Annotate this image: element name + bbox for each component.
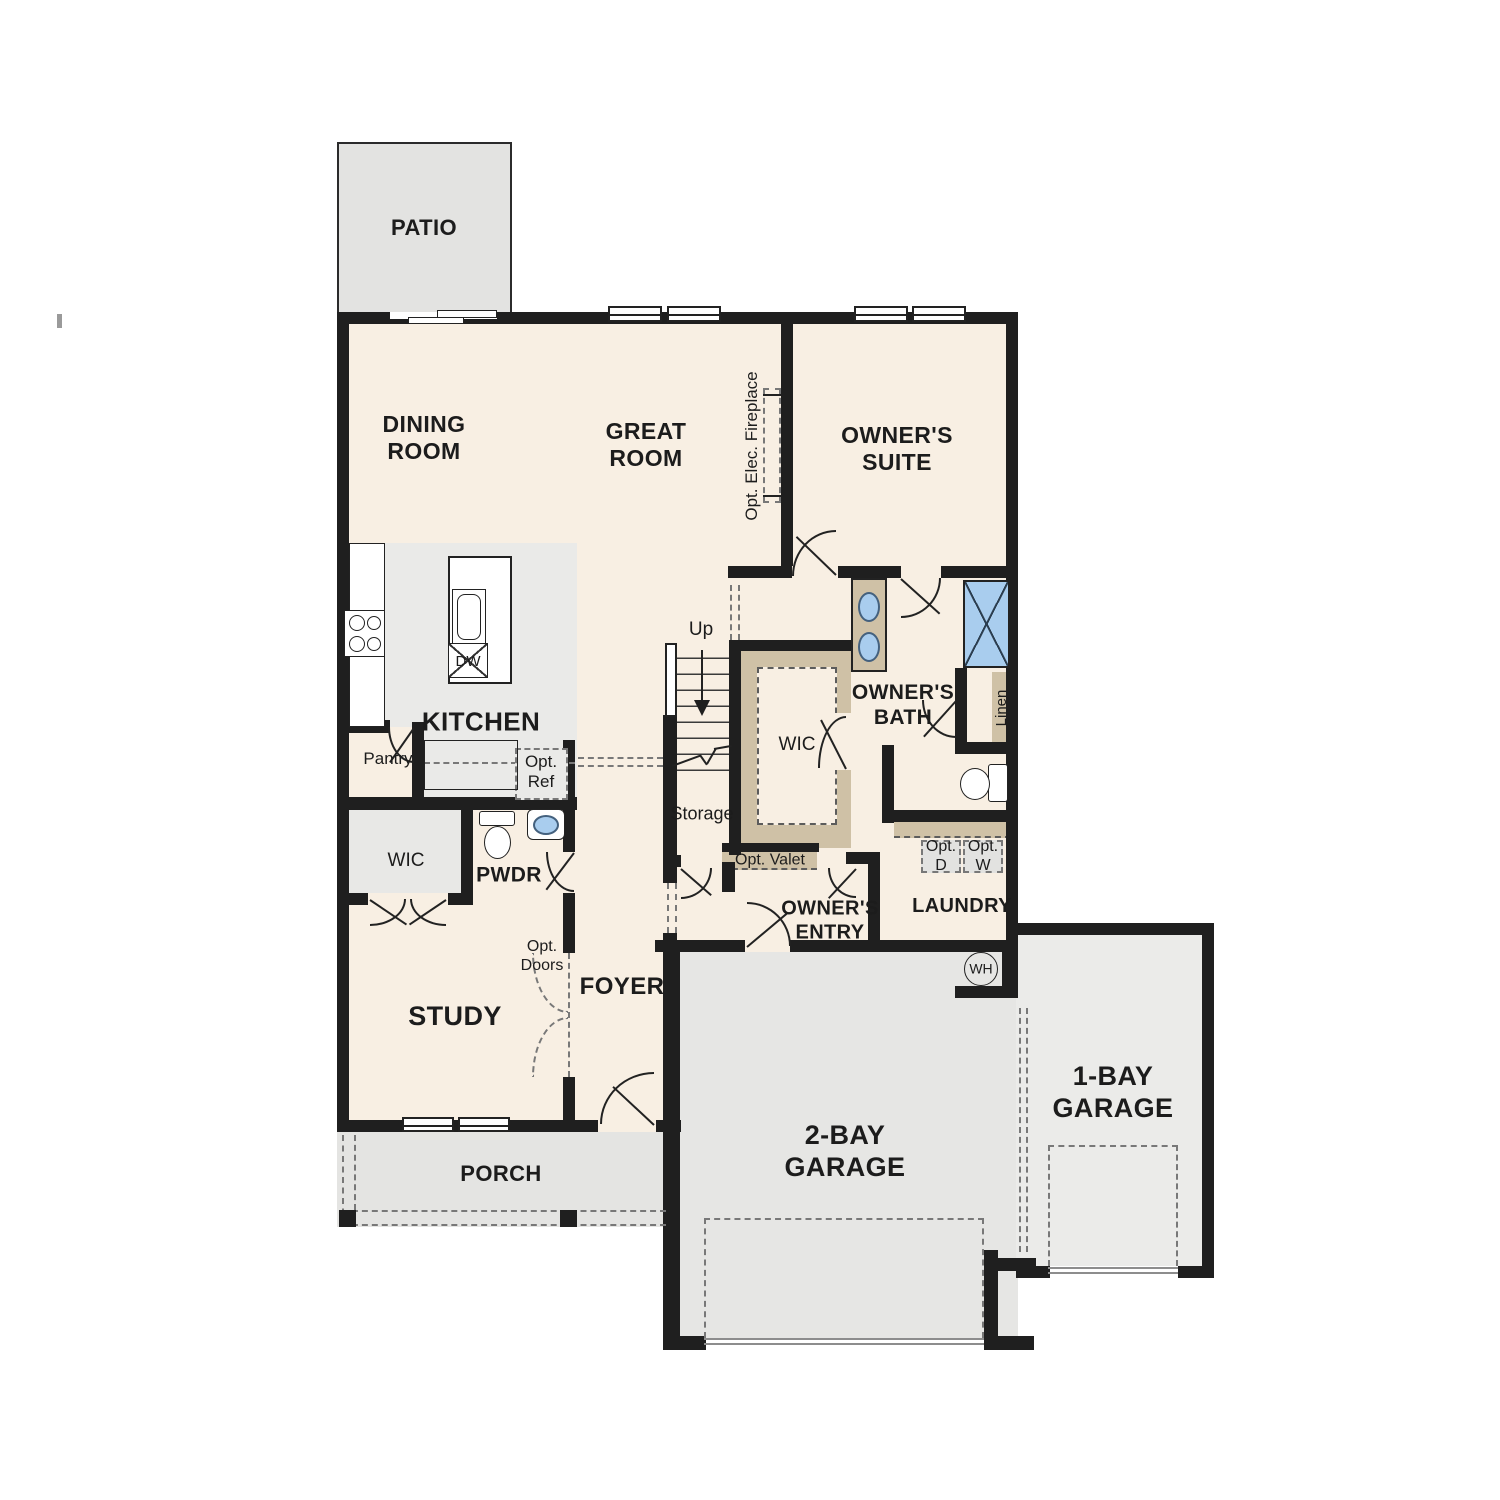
- bath-toilet-tank: [988, 764, 1008, 802]
- label-dishwasher: DW: [456, 653, 481, 671]
- room-label-entry: OWNER'S ENTRY: [765, 897, 895, 944]
- fireplace-box: [763, 388, 781, 503]
- room-label-laundry: LAUNDRY: [912, 895, 1012, 919]
- wall-studywic-south-a: [337, 893, 368, 905]
- wall-study-foyer-lower: [563, 1077, 575, 1132]
- label-stairs-up: Up: [689, 619, 713, 641]
- wall-studywic-south-b: [448, 893, 468, 905]
- label-pantry: Pantry: [363, 749, 412, 769]
- garage1-bay-outline: [1048, 1145, 1178, 1266]
- window-suite-2: [912, 306, 966, 322]
- vanity-sink-1: [858, 592, 880, 622]
- room-label-garage1: 1-BAY GARAGE: [1033, 1061, 1193, 1125]
- garage2-door-sill-a: [704, 1338, 984, 1340]
- wall-garage2-bottom-left: [666, 1336, 706, 1350]
- room-label-porch: PORCH: [460, 1161, 541, 1187]
- floor-plan: PATIO DINING ROOM GREAT ROOM OWNER'S SUI…: [0, 0, 1500, 1500]
- label-opt-dryer: Opt. D: [919, 838, 963, 876]
- wall-laundry-door-head: [846, 852, 880, 864]
- kitchen-base-counter: [424, 740, 518, 790]
- bath-toilet-bowl: [960, 768, 990, 800]
- wall-garage1-bottom-left: [1016, 1266, 1050, 1278]
- bath-door-gap: [901, 566, 941, 578]
- window-suite-1: [854, 306, 908, 322]
- wall-bath-west: [882, 745, 894, 823]
- pwdr-sink-basin: [533, 815, 559, 835]
- wall-garage1-right: [1202, 923, 1214, 1278]
- garage1-door-sill-a: [1048, 1267, 1178, 1269]
- cased-opening-foyer-a: [578, 757, 663, 759]
- wall-wic-pwdr: [461, 797, 473, 905]
- room-label-patio: PATIO: [391, 215, 457, 241]
- wall-garage1-bottom-right: [1178, 1266, 1214, 1278]
- garage2-bay-outline: [704, 1218, 984, 1338]
- pwdr-toilet-tank: [479, 811, 515, 826]
- label-water-heater: WH: [969, 961, 992, 978]
- label-fireplace: Opt. Elec. Fireplace: [742, 371, 762, 520]
- room-label-garage2: 2-BAY GARAGE: [760, 1120, 930, 1184]
- room-label-foyer: FOYER: [580, 973, 665, 1001]
- label-opt-ref: Opt. Ref: [515, 752, 567, 792]
- wall-wic-top: [729, 640, 851, 651]
- window-study-2: [458, 1117, 510, 1132]
- stair-up-line: [701, 650, 703, 702]
- stair-stringer: [665, 643, 677, 717]
- stair-up-arrowhead: [694, 700, 710, 716]
- label-storage: Storage: [670, 803, 733, 824]
- patio-slider-panel-inner: [408, 317, 464, 324]
- room-label-kitchen: KITCHEN: [422, 707, 540, 738]
- wall-valet-corner: [722, 862, 735, 892]
- cased-opening-greatroom-b: [738, 585, 740, 640]
- wall-wh-nook-h: [955, 986, 1018, 998]
- pwdr-toilet-bowl: [484, 826, 511, 859]
- label-opt-doors: Opt. Doors: [513, 938, 571, 976]
- garage2-door-sill-b: [704, 1343, 984, 1345]
- wall-storage-left: [663, 715, 677, 883]
- laundry-counter-band: [894, 822, 1011, 838]
- vanity-sink-2: [858, 632, 880, 662]
- cooktop-burner-4: [367, 637, 381, 651]
- fireplace-tick-top: [763, 394, 781, 396]
- label-opt-washer: Opt. W: [961, 838, 1005, 876]
- wall-greatroom-suite: [781, 312, 793, 578]
- wall-bath-south: [894, 810, 1018, 822]
- garage-boundary-dash-a: [1019, 1008, 1021, 1252]
- cased-opening-foyer-b: [578, 765, 663, 767]
- room-label-great: GREAT ROOM: [586, 418, 706, 472]
- fireplace-tick-bottom: [763, 495, 781, 497]
- room-label-wic-owner: WIC: [779, 734, 816, 756]
- room-label-pwdr: PWDR: [476, 864, 542, 889]
- room-label-bath: OWNER'S BATH: [843, 681, 963, 731]
- wall-linen-bottom: [955, 742, 1018, 754]
- window-greatroom-1: [608, 306, 662, 322]
- cooktop-burner-3: [349, 636, 365, 652]
- wall-garage1-top: [1016, 923, 1214, 935]
- porch-post-right: [560, 1210, 577, 1227]
- wall-garage-left: [663, 940, 680, 1350]
- room-label-suite: OWNER'S SUITE: [827, 422, 967, 476]
- porch-dash-bottom-a: [342, 1210, 666, 1212]
- room-label-wic-study: WIC: [388, 850, 425, 872]
- label-linen: Linen: [993, 690, 1011, 727]
- cooktop-burner-2: [367, 616, 381, 630]
- porch-post-left: [339, 1210, 356, 1227]
- porch-dash-left-b: [354, 1135, 356, 1210]
- cased-opening-entry-a: [667, 883, 669, 933]
- garage-boundary-dash-b: [1026, 1008, 1028, 1252]
- room-label-study: STUDY: [408, 1001, 502, 1033]
- label-opt-valet: Opt. Valet: [735, 852, 805, 871]
- shower: [963, 580, 1010, 668]
- cased-opening-greatroom-a: [730, 585, 732, 640]
- window-study-1: [402, 1117, 454, 1132]
- kitchen-sink-basin: [457, 594, 481, 640]
- cased-opening-entry-b: [675, 883, 677, 933]
- room-label-dining: DINING ROOM: [359, 411, 489, 465]
- wall-garage2-right: [984, 1250, 998, 1350]
- window-greatroom-2: [667, 306, 721, 322]
- porch-dash-bottom-b: [342, 1224, 666, 1226]
- wall-suite-south: [728, 566, 1018, 578]
- print-tick: [57, 314, 62, 328]
- garage1-door-sill-b: [1048, 1272, 1178, 1274]
- cooktop-burner-1: [349, 615, 365, 631]
